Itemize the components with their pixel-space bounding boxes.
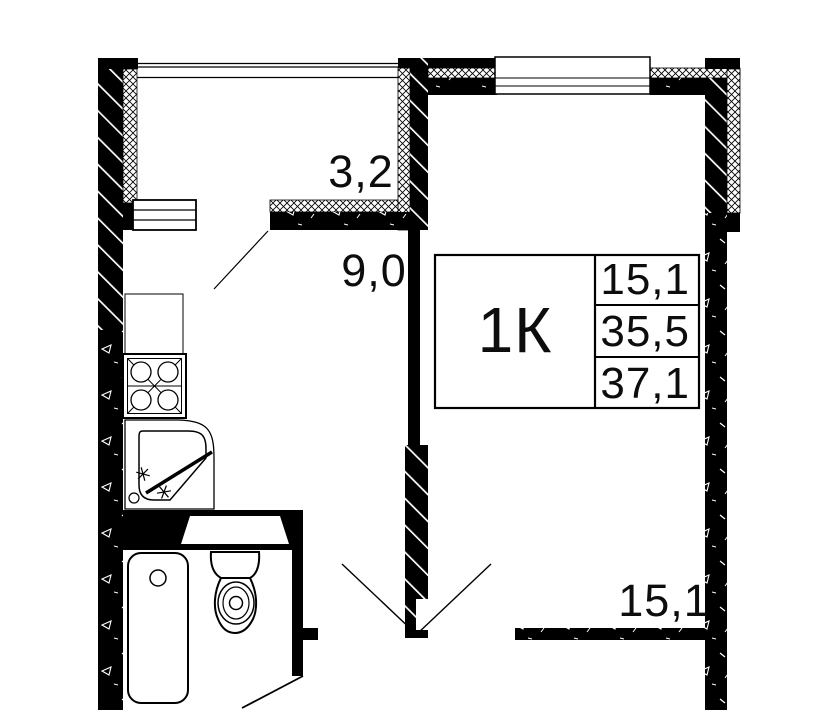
unit-info-table: 1К 15,1 35,5 37,1	[435, 255, 699, 408]
kitchen-sink	[125, 420, 214, 509]
balcony-area-label: 3,2	[328, 146, 394, 197]
table-row-value: 35,5	[600, 307, 690, 356]
kitchen-counter	[125, 294, 183, 354]
table-row-value: 15,1	[600, 255, 690, 304]
table-row-value: 37,1	[600, 359, 690, 408]
bathroom-doorway	[181, 516, 289, 544]
unit-type-label: 1К	[478, 294, 553, 366]
window	[495, 57, 650, 94]
bathtub	[128, 553, 188, 703]
radiator	[123, 200, 196, 230]
floor-plan-drawing: 1К 15,1 35,5 37,1 3,2 9,0 15,1	[0, 0, 840, 710]
kitchen-area-label: 9,0	[341, 245, 407, 296]
stove	[123, 354, 186, 418]
floor-plan-canvas: 1К 15,1 35,5 37,1 3,2 9,0 15,1	[0, 0, 840, 710]
living-room-area-label: 15,1	[618, 575, 710, 626]
toilet	[211, 552, 259, 633]
room-bottom-wall	[515, 628, 707, 640]
